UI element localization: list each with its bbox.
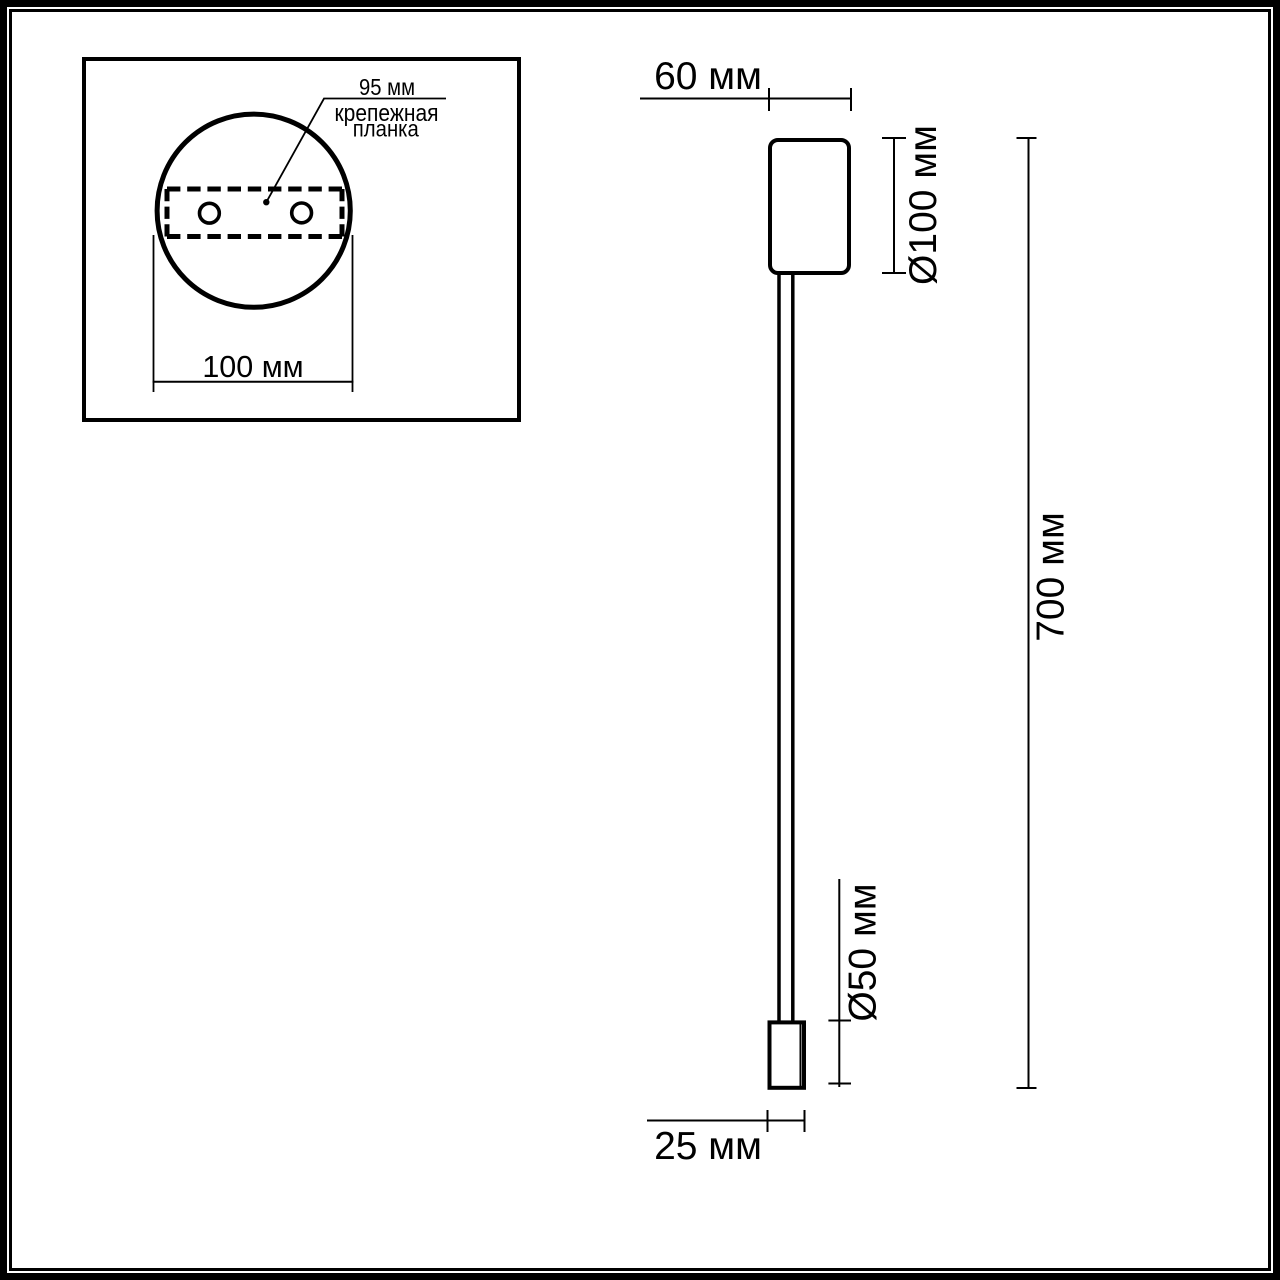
svg-text:25 мм: 25 мм [654,1125,762,1168]
svg-text:60 мм: 60 мм [654,55,762,98]
svg-text:Ø100 мм: Ø100 мм [902,125,945,285]
svg-text:95 мм: 95 мм [359,74,415,100]
svg-text:Ø50 мм: Ø50 мм [842,883,885,1021]
svg-text:100 мм: 100 мм [202,350,303,384]
svg-text:700 мм: 700 мм [1030,512,1073,642]
svg-text:планка: планка [353,116,419,142]
